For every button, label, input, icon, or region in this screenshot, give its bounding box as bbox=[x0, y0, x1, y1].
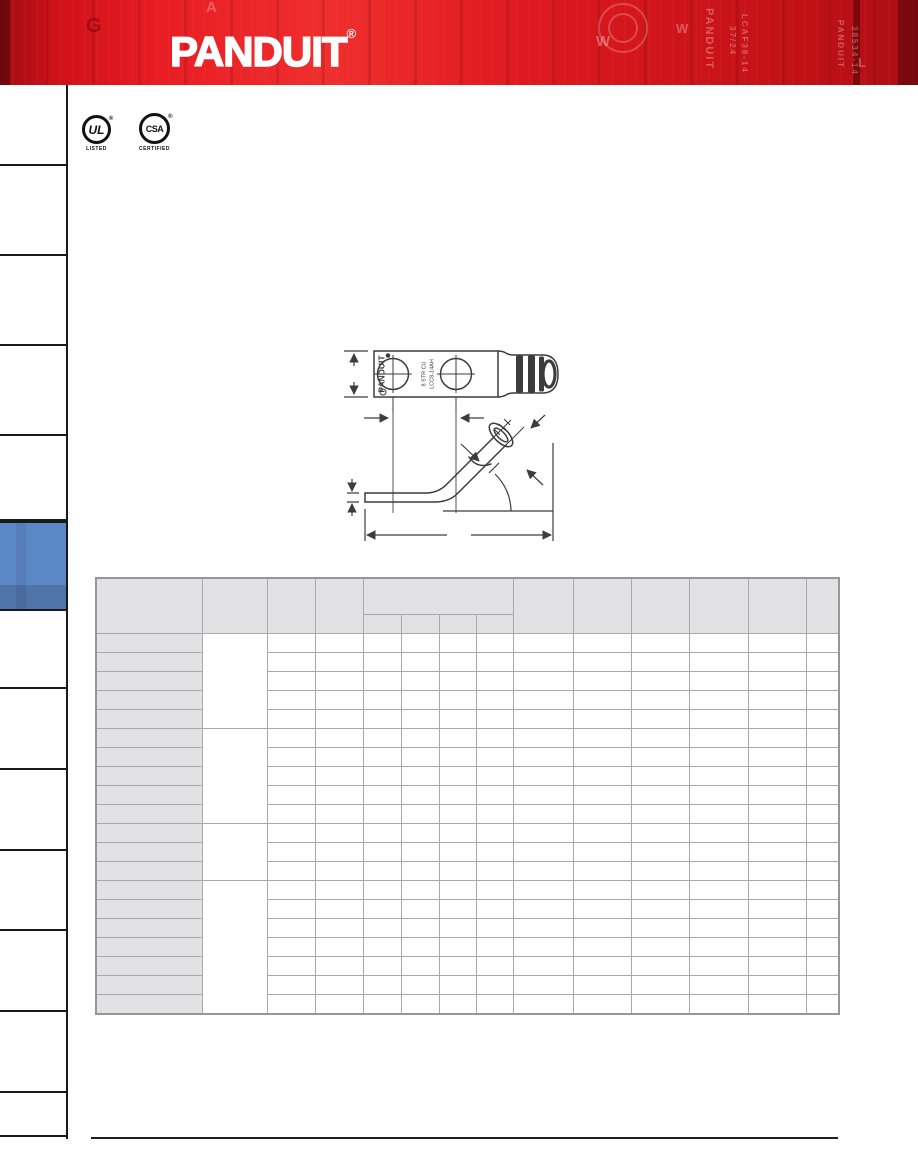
banner-watermark-vertical-text: PANDUIT bbox=[836, 20, 844, 69]
row-label-cell bbox=[96, 899, 202, 918]
table-row bbox=[96, 633, 839, 652]
table-cell bbox=[806, 671, 839, 690]
table-cell bbox=[689, 804, 748, 823]
table-cell bbox=[267, 785, 315, 804]
header-subcell bbox=[439, 614, 476, 633]
table-cell bbox=[439, 975, 476, 994]
table-cell bbox=[267, 842, 315, 861]
banner-watermark-vertical-text: 37/24 bbox=[728, 26, 736, 56]
table-cell bbox=[267, 633, 315, 652]
group-merged-cell bbox=[202, 880, 267, 1014]
table-cell bbox=[476, 937, 513, 956]
table-cell bbox=[631, 975, 689, 994]
table-cell bbox=[315, 880, 363, 899]
table-cell bbox=[315, 804, 363, 823]
table-cell bbox=[513, 956, 573, 975]
table-cell bbox=[401, 975, 439, 994]
table-cell bbox=[401, 937, 439, 956]
table-cell bbox=[573, 652, 631, 671]
table-cell bbox=[573, 671, 631, 690]
table-cell bbox=[267, 766, 315, 785]
table-cell bbox=[401, 823, 439, 842]
table-cell bbox=[476, 785, 513, 804]
header-cell bbox=[748, 578, 806, 633]
table-cell bbox=[315, 747, 363, 766]
banner-watermark-letter: L bbox=[858, 56, 867, 69]
header-cell bbox=[267, 578, 315, 633]
header-cell bbox=[315, 578, 363, 633]
table-cell bbox=[689, 861, 748, 880]
table-cell bbox=[689, 956, 748, 975]
table-cell bbox=[748, 747, 806, 766]
table-cell bbox=[631, 671, 689, 690]
table-cell bbox=[476, 671, 513, 690]
table-cell bbox=[363, 842, 401, 861]
row-label-cell bbox=[96, 937, 202, 956]
ul-letters: UL bbox=[89, 123, 105, 137]
table-cell bbox=[363, 880, 401, 899]
table-cell bbox=[439, 937, 476, 956]
table-cell bbox=[363, 728, 401, 747]
table-cell bbox=[573, 709, 631, 728]
table-cell bbox=[748, 728, 806, 747]
table-cell bbox=[513, 842, 573, 861]
table-cell bbox=[573, 633, 631, 652]
table-cell bbox=[439, 690, 476, 709]
csa-circle-icon: CSA ® bbox=[139, 113, 170, 144]
table-cell bbox=[476, 861, 513, 880]
table-cell bbox=[401, 671, 439, 690]
table-cell bbox=[513, 690, 573, 709]
table-cell bbox=[476, 880, 513, 899]
banner-watermark-letter: G bbox=[86, 16, 103, 36]
catalog-page: GAWWLPANDUIT37/24LCAF38-14PANDUIT38534-1… bbox=[0, 0, 918, 1175]
table-cell bbox=[401, 766, 439, 785]
row-label-cell bbox=[96, 861, 202, 880]
table-cell bbox=[573, 804, 631, 823]
spec-table bbox=[95, 577, 840, 1015]
table-cell bbox=[806, 918, 839, 937]
table-cell bbox=[806, 975, 839, 994]
row-label-cell bbox=[96, 880, 202, 899]
table-cell bbox=[806, 823, 839, 842]
row-label-cell bbox=[96, 690, 202, 709]
header-subcell bbox=[476, 614, 513, 633]
registered-mark: ® bbox=[109, 116, 113, 122]
table-cell bbox=[267, 994, 315, 1014]
table-cell bbox=[513, 785, 573, 804]
table-cell bbox=[476, 747, 513, 766]
csa-caption: CERTIFIED bbox=[139, 146, 170, 152]
table-cell bbox=[689, 785, 748, 804]
drawing-brand-text: PANDUIT bbox=[376, 355, 386, 393]
table-cell bbox=[401, 690, 439, 709]
row-label-cell bbox=[96, 804, 202, 823]
table-cell bbox=[363, 690, 401, 709]
table-cell bbox=[513, 766, 573, 785]
table-cell bbox=[315, 994, 363, 1014]
table-cell bbox=[806, 804, 839, 823]
group-merged-cell bbox=[202, 728, 267, 823]
banner-watermark-vertical-text: LCAF38-14 bbox=[740, 14, 748, 74]
table-cell bbox=[439, 652, 476, 671]
table-cell bbox=[748, 766, 806, 785]
sidebar-tab[interactable] bbox=[0, 611, 66, 689]
table-cell bbox=[513, 709, 573, 728]
table-cell bbox=[689, 652, 748, 671]
table-cell bbox=[363, 956, 401, 975]
table-cell bbox=[267, 671, 315, 690]
table-cell bbox=[363, 785, 401, 804]
table-cell bbox=[401, 804, 439, 823]
table-cell bbox=[513, 747, 573, 766]
table-cell bbox=[401, 880, 439, 899]
table-cell bbox=[631, 994, 689, 1014]
sidebar-tab[interactable] bbox=[0, 1093, 66, 1137]
table-cell bbox=[363, 709, 401, 728]
table-cell bbox=[806, 899, 839, 918]
table-cell bbox=[806, 652, 839, 671]
table-cell bbox=[476, 842, 513, 861]
table-cell bbox=[439, 994, 476, 1014]
table-cell bbox=[401, 785, 439, 804]
table-cell bbox=[806, 880, 839, 899]
table-cell bbox=[806, 785, 839, 804]
table-cell bbox=[806, 690, 839, 709]
table-cell bbox=[573, 918, 631, 937]
sidebar-tab[interactable] bbox=[0, 851, 66, 931]
header-cell bbox=[202, 578, 267, 633]
table-cell bbox=[363, 899, 401, 918]
table-cell bbox=[748, 918, 806, 937]
table-cell bbox=[439, 747, 476, 766]
row-label-cell bbox=[96, 918, 202, 937]
table-cell bbox=[439, 709, 476, 728]
table-cell bbox=[401, 728, 439, 747]
table-cell bbox=[513, 633, 573, 652]
csa-certified-logo: CSA ® CERTIFIED bbox=[139, 113, 170, 152]
table-cell bbox=[315, 671, 363, 690]
table-cell bbox=[439, 785, 476, 804]
table-cell bbox=[806, 728, 839, 747]
table-cell bbox=[631, 728, 689, 747]
header-cell bbox=[689, 578, 748, 633]
table-cell bbox=[806, 633, 839, 652]
table-cell bbox=[315, 785, 363, 804]
table-cell bbox=[806, 937, 839, 956]
panduit-logo: PANDUIT® bbox=[170, 26, 356, 76]
table-cell bbox=[513, 823, 573, 842]
table-cell bbox=[476, 956, 513, 975]
table-cell bbox=[806, 766, 839, 785]
table-cell bbox=[267, 804, 315, 823]
table-cell bbox=[748, 880, 806, 899]
table-cell bbox=[748, 785, 806, 804]
sidebar-tab[interactable] bbox=[0, 1012, 66, 1093]
table-cell bbox=[439, 671, 476, 690]
table-cell bbox=[267, 861, 315, 880]
table-cell bbox=[315, 633, 363, 652]
table-cell bbox=[806, 861, 839, 880]
table-cell bbox=[573, 766, 631, 785]
header-cell bbox=[96, 578, 202, 633]
table-cell bbox=[631, 823, 689, 842]
sidebar-divider bbox=[66, 85, 68, 1139]
row-label-cell bbox=[96, 994, 202, 1014]
table-cell bbox=[631, 633, 689, 652]
banner-watermark-vertical-text: PANDUIT bbox=[703, 8, 714, 70]
sidebar-tab[interactable] bbox=[0, 770, 66, 851]
table-cell bbox=[267, 880, 315, 899]
csa-letters: CSA bbox=[146, 124, 164, 134]
table-cell bbox=[806, 994, 839, 1014]
table-cell bbox=[573, 785, 631, 804]
sidebar-tab[interactable] bbox=[0, 85, 66, 166]
table-cell bbox=[748, 633, 806, 652]
table-cell bbox=[401, 994, 439, 1014]
table-cell bbox=[631, 918, 689, 937]
registered-mark: ® bbox=[168, 114, 172, 120]
table-cell bbox=[748, 937, 806, 956]
sidebar-tab[interactable] bbox=[0, 166, 66, 256]
table-cell bbox=[363, 633, 401, 652]
table-cell bbox=[573, 956, 631, 975]
table-cell bbox=[806, 709, 839, 728]
table-cell bbox=[476, 918, 513, 937]
table-cell bbox=[631, 652, 689, 671]
header-cell bbox=[573, 578, 631, 633]
table-cell bbox=[573, 975, 631, 994]
table-cell bbox=[439, 804, 476, 823]
banner-watermark-letter: A bbox=[206, 0, 218, 15]
table-cell bbox=[401, 899, 439, 918]
row-label-cell bbox=[96, 956, 202, 975]
row-label-cell bbox=[96, 671, 202, 690]
table-cell bbox=[631, 937, 689, 956]
sidebar-tab[interactable] bbox=[0, 689, 66, 770]
product-photo-lug: PANDUIT 8 STR CU bbox=[78, 332, 278, 567]
table-cell bbox=[315, 690, 363, 709]
table-cell bbox=[631, 785, 689, 804]
drawing-marking-line2: LCC8-14AH bbox=[429, 359, 435, 389]
table-cell bbox=[513, 652, 573, 671]
table-cell bbox=[573, 861, 631, 880]
drawing-side-view bbox=[343, 413, 613, 553]
table-cell bbox=[401, 747, 439, 766]
table-cell bbox=[513, 994, 573, 1014]
table-cell bbox=[689, 728, 748, 747]
table-cell bbox=[631, 709, 689, 728]
table-cell bbox=[573, 880, 631, 899]
table-cell bbox=[315, 728, 363, 747]
table-cell bbox=[689, 823, 748, 842]
group-merged-cell bbox=[202, 633, 267, 728]
table-cell bbox=[689, 671, 748, 690]
table-cell bbox=[748, 652, 806, 671]
registered-mark: ® bbox=[347, 26, 357, 41]
table-cell bbox=[631, 956, 689, 975]
table-cell bbox=[267, 823, 315, 842]
table-cell bbox=[631, 766, 689, 785]
table-cell bbox=[439, 918, 476, 937]
header-cell bbox=[806, 578, 839, 633]
sidebar-tab-active[interactable] bbox=[0, 521, 66, 611]
panduit-logo-text: PANDUIT bbox=[170, 28, 347, 75]
table-cell bbox=[267, 956, 315, 975]
table-cell bbox=[513, 880, 573, 899]
table-cell bbox=[315, 975, 363, 994]
table-cell bbox=[267, 709, 315, 728]
table-cell bbox=[748, 804, 806, 823]
row-label-cell bbox=[96, 823, 202, 842]
table-cell bbox=[806, 956, 839, 975]
table-cell bbox=[748, 994, 806, 1014]
table-cell bbox=[748, 671, 806, 690]
table-cell bbox=[267, 747, 315, 766]
sidebar-tab[interactable] bbox=[0, 436, 66, 521]
table-cell bbox=[806, 842, 839, 861]
table-cell bbox=[476, 728, 513, 747]
table-cell bbox=[439, 880, 476, 899]
table-cell bbox=[748, 709, 806, 728]
table-cell bbox=[476, 690, 513, 709]
row-label-cell bbox=[96, 766, 202, 785]
group-merged-cell bbox=[202, 823, 267, 880]
table-cell bbox=[573, 842, 631, 861]
header-cell bbox=[631, 578, 689, 633]
table-cell bbox=[476, 766, 513, 785]
header-subcell bbox=[401, 614, 439, 633]
table-cell bbox=[573, 994, 631, 1014]
banner-watermark-vertical-text: 38534-14 bbox=[850, 26, 858, 76]
table-cell bbox=[363, 823, 401, 842]
table-cell bbox=[315, 899, 363, 918]
banner-watermark-circle bbox=[608, 13, 638, 43]
table-cell bbox=[573, 937, 631, 956]
table-cell bbox=[748, 899, 806, 918]
table-cell bbox=[315, 937, 363, 956]
table-cell bbox=[439, 728, 476, 747]
ul-caption: LISTED bbox=[82, 146, 111, 152]
table-cell bbox=[689, 994, 748, 1014]
table-cell bbox=[267, 690, 315, 709]
row-label-cell bbox=[96, 747, 202, 766]
table-cell bbox=[363, 671, 401, 690]
table-cell bbox=[267, 899, 315, 918]
table-cell bbox=[439, 766, 476, 785]
row-label-cell bbox=[96, 975, 202, 994]
table-cell bbox=[401, 842, 439, 861]
table-cell bbox=[689, 709, 748, 728]
table-cell bbox=[806, 747, 839, 766]
table-cell bbox=[476, 823, 513, 842]
table-cell bbox=[439, 633, 476, 652]
table-cell bbox=[267, 937, 315, 956]
header-cell bbox=[513, 578, 573, 633]
table-cell bbox=[748, 690, 806, 709]
table-cell bbox=[476, 804, 513, 823]
table-cell bbox=[631, 747, 689, 766]
table-cell bbox=[689, 690, 748, 709]
table-cell bbox=[631, 861, 689, 880]
table-cell bbox=[439, 956, 476, 975]
header-subcell bbox=[363, 614, 401, 633]
table-cell bbox=[363, 861, 401, 880]
table-cell bbox=[439, 842, 476, 861]
drawing-marking-line1: 8 STR CU bbox=[421, 361, 427, 386]
table-cell bbox=[439, 861, 476, 880]
table-cell bbox=[476, 652, 513, 671]
table-cell bbox=[315, 861, 363, 880]
banner-edge-bar bbox=[898, 0, 918, 85]
table-cell bbox=[513, 918, 573, 937]
banner-edge-bar bbox=[0, 0, 10, 85]
table-cell bbox=[689, 633, 748, 652]
table-cell bbox=[631, 842, 689, 861]
footer-rule bbox=[91, 1137, 838, 1139]
banner-watermark-letter: W bbox=[676, 22, 689, 35]
table-cell bbox=[363, 937, 401, 956]
table-cell bbox=[267, 652, 315, 671]
table-cell bbox=[573, 728, 631, 747]
table-cell bbox=[631, 880, 689, 899]
table-cell bbox=[631, 690, 689, 709]
sidebar-tab[interactable] bbox=[0, 256, 66, 346]
table-cell bbox=[513, 937, 573, 956]
table-cell bbox=[689, 747, 748, 766]
table-cell bbox=[363, 994, 401, 1014]
table-cell bbox=[631, 899, 689, 918]
sidebar-tab[interactable] bbox=[0, 346, 66, 436]
table-cell bbox=[748, 842, 806, 861]
row-label-cell bbox=[96, 633, 202, 652]
table-cell bbox=[315, 823, 363, 842]
table-cell bbox=[513, 728, 573, 747]
table-cell bbox=[513, 975, 573, 994]
table-cell bbox=[476, 899, 513, 918]
table-cell bbox=[363, 766, 401, 785]
ul-listed-logo: UL ® LISTED bbox=[82, 115, 111, 152]
table-cell bbox=[689, 918, 748, 937]
table-cell bbox=[513, 671, 573, 690]
table-row bbox=[96, 823, 839, 842]
table-cell bbox=[573, 690, 631, 709]
row-label-cell bbox=[96, 785, 202, 804]
table-cell bbox=[573, 823, 631, 842]
ul-circle-icon: UL ® bbox=[82, 115, 111, 144]
row-label-cell bbox=[96, 709, 202, 728]
table-cell bbox=[689, 975, 748, 994]
table-cell bbox=[267, 918, 315, 937]
table-cell bbox=[513, 861, 573, 880]
sidebar-tab[interactable] bbox=[0, 931, 66, 1012]
table-cell bbox=[573, 747, 631, 766]
table-cell bbox=[363, 652, 401, 671]
table-cell bbox=[689, 880, 748, 899]
table-row bbox=[96, 880, 839, 899]
table-cell bbox=[315, 956, 363, 975]
table-cell bbox=[315, 842, 363, 861]
row-label-cell bbox=[96, 652, 202, 671]
table-cell bbox=[363, 747, 401, 766]
table-cell bbox=[315, 766, 363, 785]
table-cell bbox=[401, 956, 439, 975]
table-cell bbox=[439, 823, 476, 842]
table-row bbox=[96, 728, 839, 747]
table-cell bbox=[476, 633, 513, 652]
table-cell bbox=[267, 728, 315, 747]
banner-watermark-letter: W bbox=[596, 34, 611, 49]
